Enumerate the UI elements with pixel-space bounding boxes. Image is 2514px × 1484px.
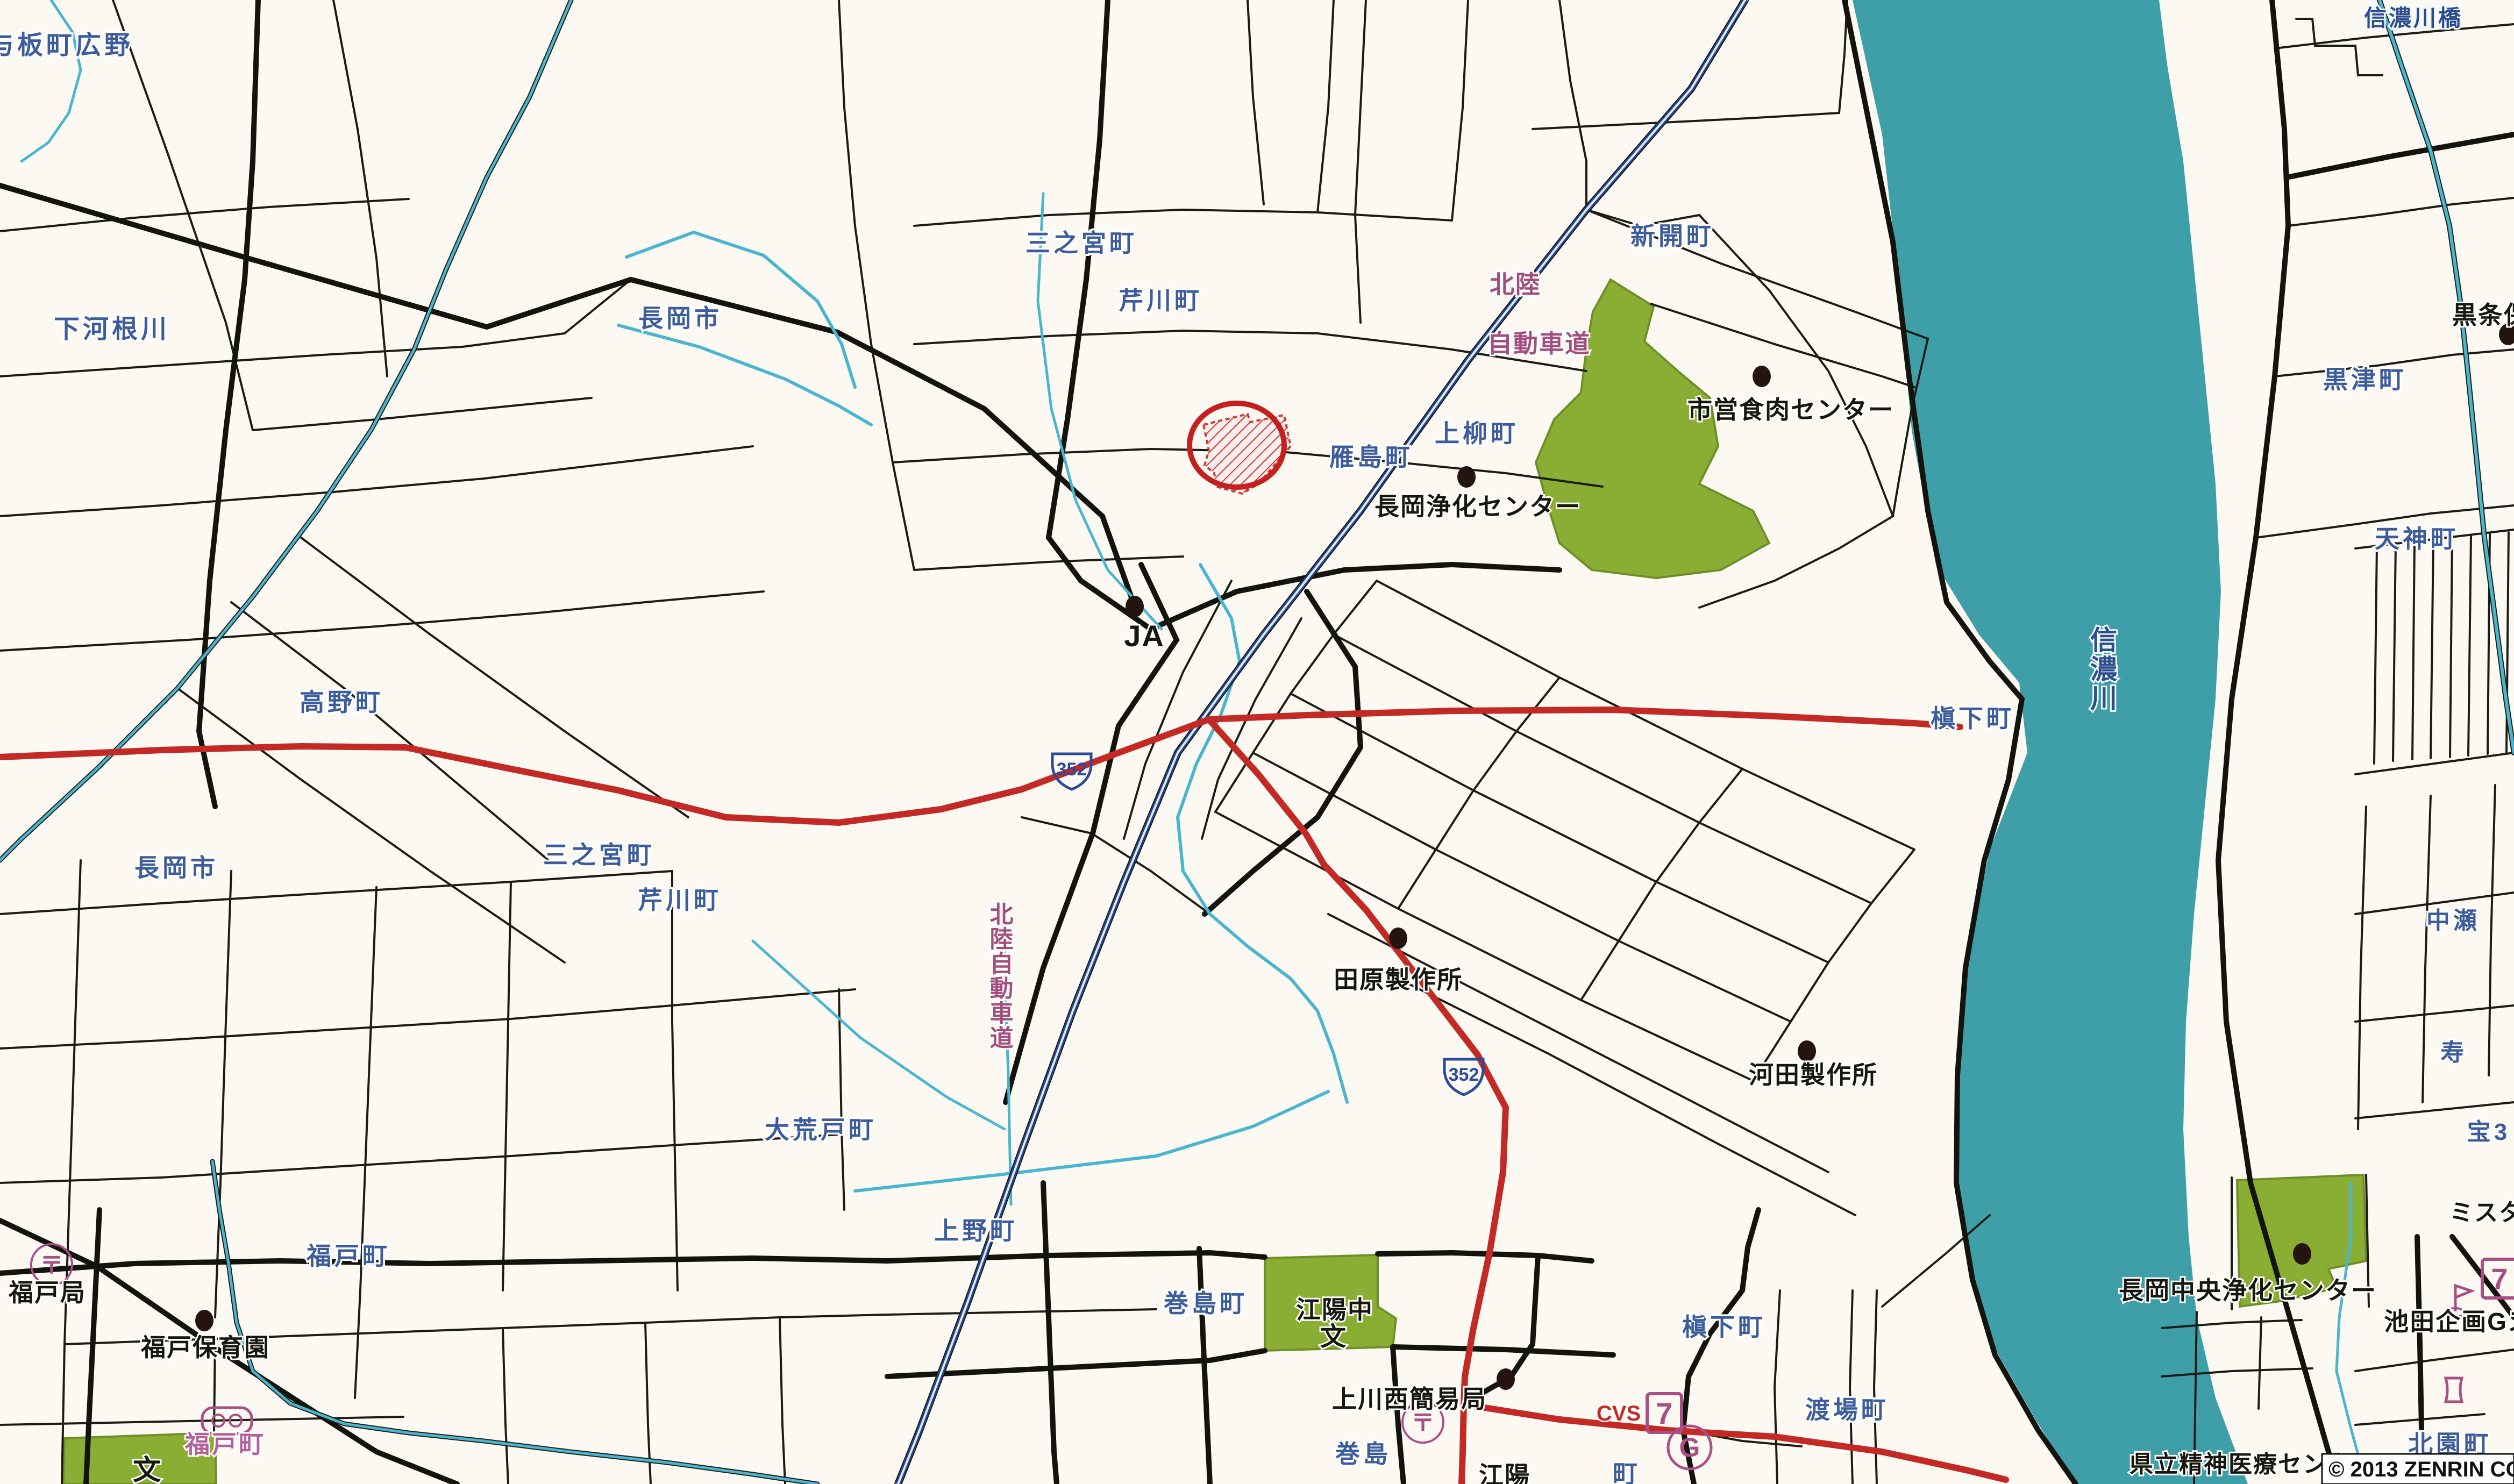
map-label: 下河根川	[54, 315, 170, 344]
map-label: 上柳町	[1435, 419, 1519, 447]
map-label: 町	[1613, 1460, 1641, 1484]
route-shield-number: 352	[1057, 759, 1087, 780]
map-label: 高野町	[300, 688, 383, 716]
post-office-glyph: 〒	[1411, 1410, 1435, 1436]
map-label: 巻島	[1335, 1440, 1391, 1468]
poi-dot-icon	[195, 1310, 213, 1331]
map-label: 天神町	[2375, 525, 2459, 553]
map-label: 三之宮町	[1025, 229, 1137, 257]
gas-g-glyph: G	[1679, 1432, 1700, 1462]
poi-dot-icon	[1457, 466, 1476, 488]
poi-dot-icon	[1126, 596, 1144, 617]
copyright-text: © 2013 ZENRIN CO.,LTD.	[2328, 1458, 2514, 1481]
map-label: 上川西簡易局	[1332, 1385, 1487, 1413]
map-label: 与板町広野	[0, 31, 133, 60]
box-7-glyph: 7	[1656, 1396, 1672, 1430]
map-label: JA	[1124, 619, 1165, 653]
map-label: 巻島町	[1164, 1289, 1248, 1317]
map-svg: 〒〒G77352352 与板町広野下河根川長岡市三之宮町芹川町新開町上柳町雁島町…	[0, 0, 2514, 1484]
map-label: 北陸自動車道	[986, 902, 1014, 1050]
post-office-glyph: 〒	[40, 1252, 63, 1279]
map-label: 自動車道	[1487, 330, 1591, 358]
map-label: 河田製作所	[1749, 1061, 1878, 1089]
map-label: 福戸町	[184, 1430, 266, 1458]
map-label: 田原製作所	[1334, 966, 1463, 994]
poi-dot-icon	[1497, 1368, 1515, 1390]
route-shield-number: 352	[1449, 1065, 1479, 1085]
map-label: 江陽中	[1296, 1296, 1373, 1324]
route-bottom-south	[1462, 1404, 1464, 1484]
map-label: 新開町	[1630, 222, 1714, 250]
map-label: 上野町	[934, 1217, 1018, 1245]
map-label: 長岡市	[134, 854, 218, 882]
map-label: 信濃川	[2086, 626, 2117, 713]
zenrin-map-canvas[interactable]: 〒〒G77352352 与板町広野下河根川長岡市三之宮町芹川町新開町上柳町雁島町…	[0, 0, 2514, 1484]
poi-dot-icon	[2293, 1243, 2311, 1265]
map-label: 渡場町	[1805, 1396, 1889, 1424]
map-label: 槇下町	[1682, 1313, 1766, 1341]
map-label: 池田企画Gス	[2384, 1308, 2514, 1336]
poi-dot-icon	[1753, 366, 1771, 387]
map-label: 信濃川橋	[2364, 5, 2463, 31]
map-label: 寿	[2440, 1039, 2467, 1066]
map-label: 長岡浄化センター	[1374, 493, 1581, 520]
copyright-box: © 2013 ZENRIN CO.,LTD.	[2322, 1454, 2514, 1484]
map-label: 長岡市	[638, 304, 722, 332]
map-label: 三之宮町	[543, 841, 655, 869]
map-label: 文	[133, 1455, 162, 1484]
map-label: 芹川町	[1119, 287, 1202, 315]
map-label: 福戸局	[8, 1279, 86, 1307]
map-label: 福戸保育園	[140, 1333, 270, 1361]
map-label: 黒津町	[2323, 366, 2407, 394]
map-label: 雁島町	[1329, 443, 1413, 471]
map-label: 宝3	[2467, 1119, 2510, 1145]
map-label: CVS	[1597, 1402, 1641, 1425]
poi-dot-icon	[1798, 1040, 1816, 1062]
map-label: 芹川町	[638, 886, 722, 914]
map-label: 北陸	[1490, 270, 1541, 298]
map-label: 黒条保	[2452, 301, 2514, 329]
poi-dot-icon	[1389, 927, 1407, 949]
map-label: 大荒戸町	[765, 1116, 877, 1144]
map-label: 中瀬	[2426, 908, 2480, 934]
map-label: 長岡中央浄化センター	[2119, 1276, 2377, 1304]
map-label: 江陽	[1479, 1461, 1530, 1484]
map-label: ミスタ	[2449, 1200, 2514, 1226]
box-7-glyph: 7	[2491, 1262, 2508, 1296]
map-label: 文	[1320, 1323, 1347, 1351]
map-label: 槇下町	[1931, 704, 2014, 732]
map-label: 福戸町	[306, 1242, 390, 1270]
map-label: 市営食肉センター	[1687, 396, 1894, 424]
